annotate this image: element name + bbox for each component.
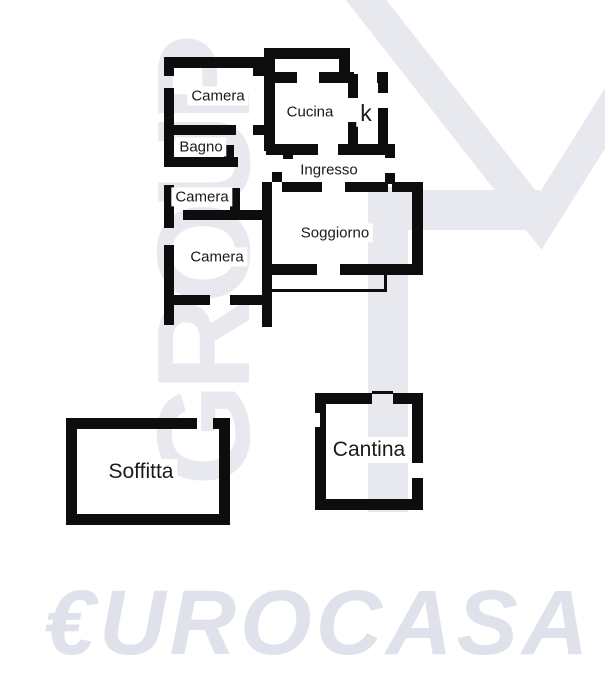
room-label-bagno: Bagno bbox=[175, 137, 226, 156]
room-label-cucina: Cucina bbox=[283, 102, 338, 121]
room-label-ingresso: Ingresso bbox=[296, 160, 362, 179]
room-label-camera-middle: Camera bbox=[171, 187, 232, 206]
room-label-soggiorno: Soggiorno bbox=[297, 223, 373, 242]
floorplan-labels: CameraCucinakBagnoIngressoCameraSoggiorn… bbox=[0, 0, 605, 680]
room-label-soffitta: Soffitta bbox=[105, 459, 178, 485]
room-label-camera-top: Camera bbox=[187, 86, 248, 105]
room-label-cantina: Cantina bbox=[329, 437, 409, 463]
floorplan-page: { "page": {"width": 605, "height": 680, … bbox=[0, 0, 605, 680]
room-label-camera-bottom: Camera bbox=[186, 247, 247, 266]
room-label-kitchenette: k bbox=[356, 99, 376, 127]
